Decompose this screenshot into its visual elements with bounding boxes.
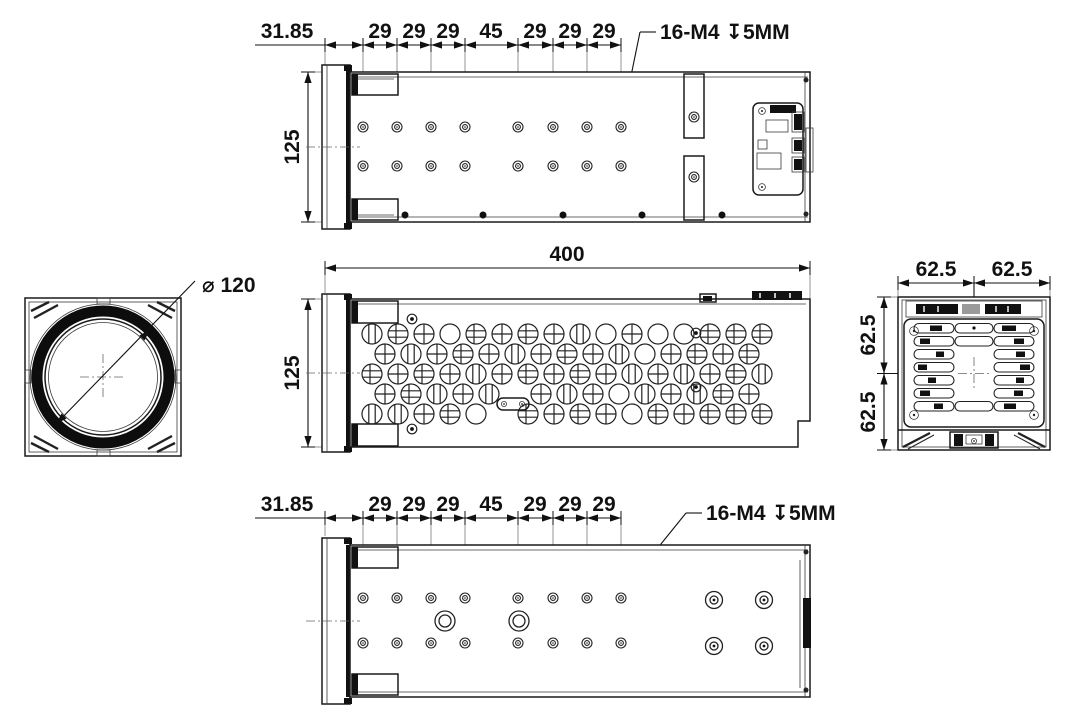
dim-top-29-2: 29 (402, 20, 425, 43)
dim-rear-width-right: 62.5 (992, 258, 1033, 281)
dim-top-45: 45 (479, 20, 503, 43)
side-view-body (306, 291, 810, 452)
dim-bottom-29-7: 29 (592, 493, 615, 516)
dim-rear-height-top: 62.5 (857, 314, 880, 355)
dim-top-29-6: 29 (558, 20, 581, 43)
dim-top-31-85: 31.85 (261, 20, 314, 43)
bottom-view-body (306, 538, 811, 704)
dim-rear-width-left: 62.5 (916, 258, 957, 281)
top-dimension-chain: 31.85 29 29 29 45 29 29 29 (255, 20, 621, 52)
technical-drawing-page: 31.85 29 29 29 45 29 29 29 16-M4 ↧5MM 12… (0, 0, 1081, 722)
dim-bottom-29-2: 29 (402, 493, 425, 516)
dim-bottom-29-5: 29 (523, 493, 546, 516)
front-view: ⌀ 120 (25, 274, 256, 456)
top-view-body (306, 65, 813, 229)
bottom-view: 31.85 29 29 29 45 29 29 29 16-M4 ↧5MM (255, 493, 836, 704)
dim-lens-diameter: ⌀ 120 (202, 274, 256, 297)
side-view: 400 125 (281, 243, 810, 452)
dim-top-29-3: 29 (436, 20, 459, 43)
dim-bottom-29-1: 29 (368, 493, 391, 516)
dim-side-height-125: 125 (281, 355, 304, 390)
dim-bottom-29-3: 29 (436, 493, 459, 516)
dim-top-29-7: 29 (592, 20, 615, 43)
thread-note-top-label: 16-M4 ↧5MM (660, 21, 790, 44)
dim-rear-height-bottom: 62.5 (857, 391, 880, 432)
top-height-dimension: 125 (281, 72, 322, 222)
side-length-dimension: 400 (325, 243, 810, 298)
dim-bottom-31-85: 31.85 (261, 493, 314, 516)
dim-bottom-29-6: 29 (558, 493, 581, 516)
dim-top-29-1: 29 (368, 20, 391, 43)
side-height-dimension: 125 (281, 299, 322, 447)
top-view: 31.85 29 29 29 45 29 29 29 16-M4 ↧5MM 12… (255, 20, 813, 229)
technical-drawing: 31.85 29 29 29 45 29 29 29 16-M4 ↧5MM 12… (0, 0, 1081, 722)
dim-bottom-45: 45 (479, 493, 503, 516)
rear-view: 62.5 62.5 62.5 62.5 (857, 258, 1050, 450)
bottom-dimension-chain: 31.85 29 29 29 45 29 29 29 (255, 493, 621, 525)
dim-top-29-5: 29 (523, 20, 546, 43)
thread-note-bottom-label: 16-M4 ↧5MM (706, 502, 836, 525)
rear-view-body (898, 297, 1050, 450)
dim-top-height-125: 125 (281, 129, 304, 164)
dim-side-length-400: 400 (549, 243, 584, 266)
